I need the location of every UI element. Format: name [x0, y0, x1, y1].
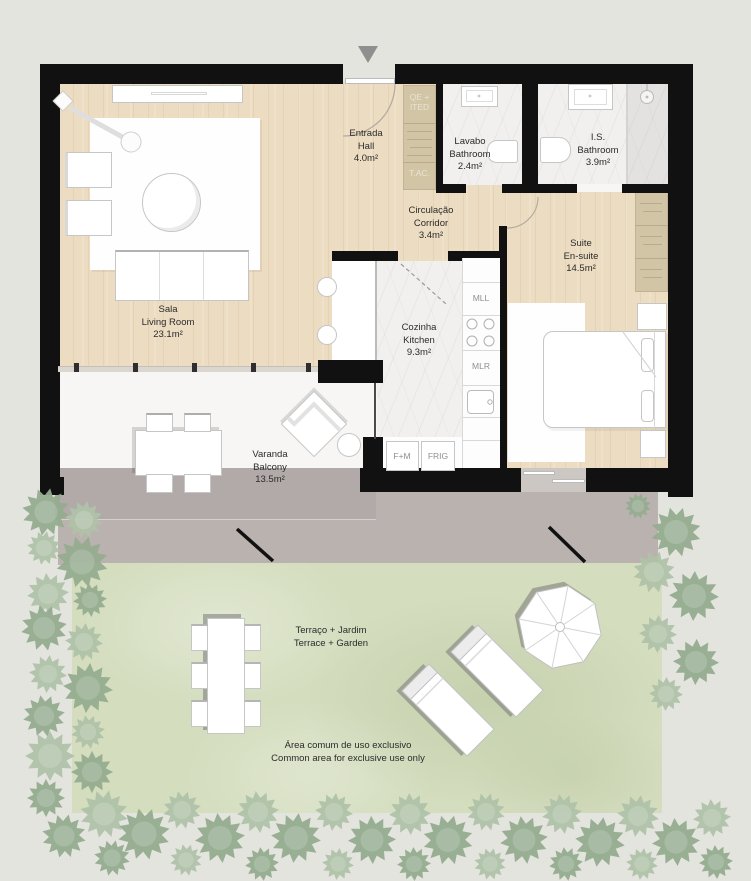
tree-icon [20, 772, 72, 824]
nightstand [640, 430, 666, 458]
kitchen-name-pt: Cozinha [402, 322, 437, 335]
hall-name-en: Hall [349, 141, 382, 154]
corridor-name-en: Corridor [409, 218, 454, 231]
kitchen-balcony-glazing [374, 383, 376, 439]
corridor-area: 3.4m² [409, 230, 454, 243]
wall-top-right [395, 64, 693, 84]
label-common-area: Área comum de uso exclusivo Common area … [271, 740, 425, 765]
tree-icon [698, 844, 734, 880]
kitchen-name-en: Kitchen [402, 335, 437, 348]
garden-chair [244, 700, 261, 727]
tree-icon [25, 731, 75, 781]
wall-kitchen-north-1 [332, 251, 398, 261]
bed-headboard-line [654, 331, 655, 428]
tree-icon [572, 814, 628, 870]
pillow [641, 390, 654, 422]
suite-name-pt: Suite [564, 238, 599, 251]
appliance-label-mll: MLL [473, 293, 490, 303]
tree-icon [187, 805, 253, 871]
tree-icon [243, 845, 280, 881]
tv-sideboard [112, 85, 243, 103]
bar-stool [317, 277, 337, 297]
balcony-name-pt: Varanda [252, 449, 287, 462]
living-name-en: Living Room [142, 317, 195, 330]
suite-area: 14.5m² [564, 263, 599, 276]
coffee-table [142, 173, 201, 232]
tree-icon [621, 843, 663, 881]
tree-icon [396, 846, 431, 881]
wall-right [668, 64, 693, 497]
is-name-pt: I.S. [577, 132, 618, 145]
tree-icon [19, 565, 77, 623]
lavabo-area: 2.4m² [449, 161, 490, 174]
tree-icon [317, 843, 359, 881]
wall-suite-west [499, 226, 507, 470]
tree-icon [17, 601, 70, 654]
garden-chair [244, 662, 261, 689]
triangle-down-icon [358, 46, 378, 63]
room-label-lavabo: Lavabo Bathroom 2.4m² [449, 136, 490, 174]
common-area-pt: Área comum de uso exclusivo [271, 740, 425, 753]
nightstand [637, 303, 667, 330]
floor-plan: QE + ITED T.AC. [0, 0, 751, 881]
wall-left-end-block [40, 477, 64, 495]
armchair [65, 152, 112, 188]
room-label-hall: Entrada Hall 4.0m² [349, 128, 382, 166]
common-area-en: Common area for exclusive use only [271, 753, 425, 766]
room-label-corridor: Circulação Corridor 3.4m² [409, 205, 454, 243]
wall-closet-lavabo [436, 84, 443, 191]
pillow [641, 338, 654, 372]
tree-icon [89, 835, 134, 880]
appliance-label-fm: F+M [393, 451, 410, 461]
garden-chair [191, 624, 208, 651]
armchair [65, 200, 112, 236]
appliance-label-frig: FRIG [428, 451, 448, 461]
wall-bottom-right [586, 468, 693, 492]
tree-icon [17, 689, 71, 743]
living-area: 23.1m² [142, 329, 195, 342]
wall-left [40, 64, 60, 490]
tech-closet-tac-label: T.AC. [403, 168, 436, 178]
hall-name-pt: Entrada [349, 128, 382, 141]
kitchen-area: 9.3m² [402, 347, 437, 360]
wall-pillar-kitchen [318, 360, 383, 383]
bar-stool [317, 325, 337, 345]
tree-icon [493, 809, 555, 871]
room-label-balcony: Varanda Balcony 13.5m² [252, 449, 287, 487]
tree-icon [38, 810, 90, 862]
wall-bath-south-2 [502, 184, 577, 193]
is-name-en: Bathroom [577, 145, 618, 158]
is-toilet [540, 137, 571, 163]
tree-icon [547, 845, 585, 881]
balcony-slab-edge [58, 519, 376, 520]
shower-area [626, 83, 668, 184]
garden-chair [191, 700, 208, 727]
balcony-chair [184, 413, 211, 432]
sofa [115, 250, 249, 301]
lavabo-sink [461, 86, 498, 107]
tree-icon [418, 810, 479, 871]
terrace-name-en: Terrace + Garden [294, 638, 368, 651]
kitchen-island [332, 261, 377, 360]
balcony-area: 13.5m² [252, 474, 287, 487]
living-name-pt: Sala [142, 304, 195, 317]
corridor-name-pt: Circulação [409, 205, 454, 218]
wall-bathroom-divider [522, 64, 538, 193]
balcony-table [135, 430, 222, 476]
balcony-chair [146, 413, 173, 432]
garden-chair [244, 624, 261, 651]
living-balcony-window [58, 366, 318, 372]
lavabo-name-en: Bathroom [449, 149, 490, 162]
balcony-chair [146, 474, 173, 493]
wall-bath-south-1 [436, 184, 466, 193]
tree-icon [665, 631, 727, 693]
tree-icon [22, 648, 75, 701]
is-sink [568, 84, 613, 110]
balcony-side-table [337, 433, 361, 457]
wall-bottom-left [360, 468, 521, 492]
tree-icon [644, 810, 708, 874]
garden-table [207, 618, 245, 734]
wall-kitchen-west-lower [363, 437, 383, 470]
room-label-kitchen: Cozinha Kitchen 9.3m² [402, 322, 437, 360]
balcony-chair [184, 474, 211, 493]
tree-icon [269, 811, 324, 866]
room-label-suite: Suite En-suite 14.5m² [564, 238, 599, 276]
lavabo-toilet [487, 140, 518, 163]
garden-grass [72, 563, 662, 813]
tree-icon [686, 792, 739, 845]
tree-icon [340, 808, 405, 873]
room-label-is-bathroom: I.S. Bathroom 3.9m² [577, 132, 618, 170]
tree-icon [470, 844, 510, 881]
garden-chair [191, 662, 208, 689]
suite-name-en: En-suite [564, 251, 599, 264]
tech-closet-qe-ited-label: QE + ITED [403, 92, 436, 112]
room-label-living: Sala Living Room 23.1m² [142, 304, 195, 342]
label-terrace-garden: Terraço + Jardim Terrace + Garden [294, 625, 368, 650]
kitchen-sink [467, 390, 494, 414]
appliance-label-mlr: MLR [472, 361, 490, 371]
entrance-door [345, 78, 395, 84]
tree-icon [167, 841, 205, 879]
wall-bath-south-3 [622, 184, 668, 193]
tree-icon [668, 570, 720, 622]
is-area: 3.9m² [577, 157, 618, 170]
wall-top-left [40, 64, 343, 84]
terrace-name-pt: Terraço + Jardim [294, 625, 368, 638]
balcony-name-en: Balcony [252, 462, 287, 475]
hall-area: 4.0m² [349, 153, 382, 166]
lavabo-name-pt: Lavabo [449, 136, 490, 149]
